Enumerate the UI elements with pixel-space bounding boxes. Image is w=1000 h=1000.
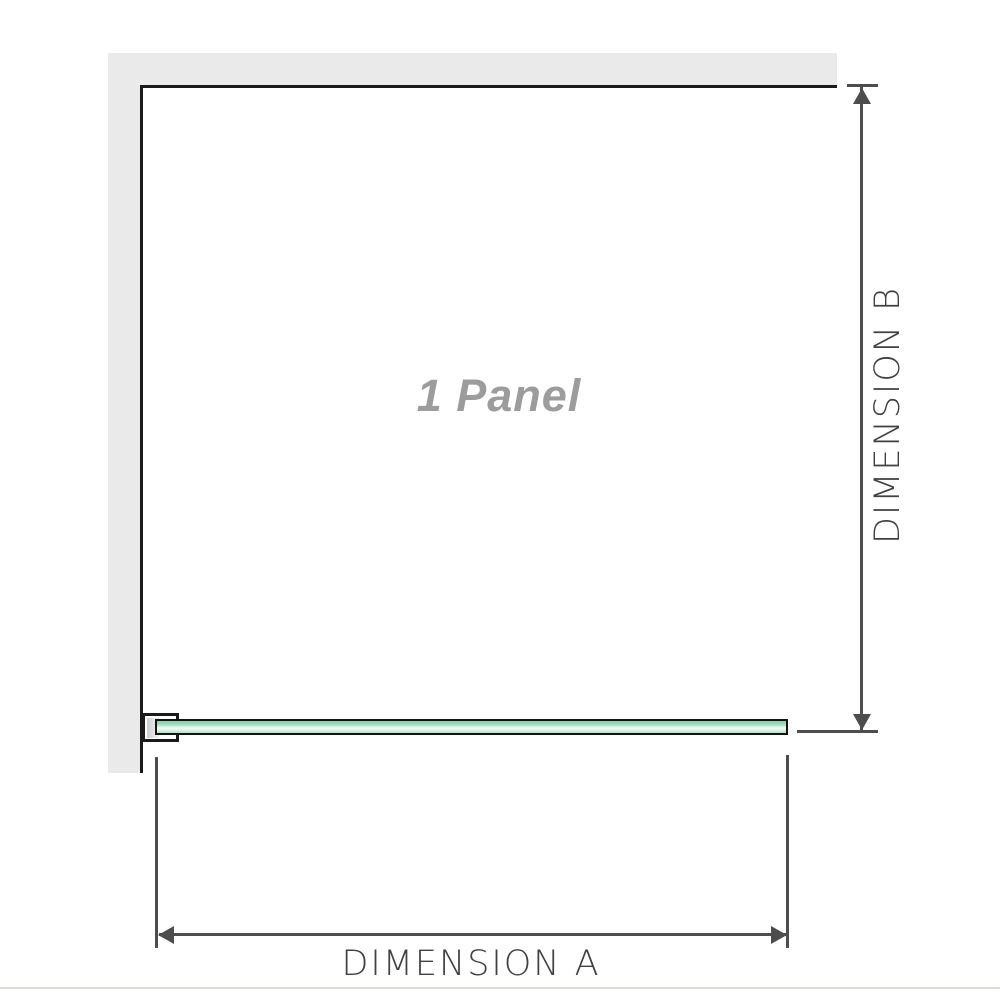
dimension-b-line — [860, 87, 863, 731]
dimension-b-label: DIMENSION B — [868, 286, 908, 544]
panel-count-watermark: 1 Panel — [417, 370, 582, 422]
arrow-right-icon — [771, 926, 787, 944]
arrow-left-icon — [158, 926, 174, 944]
dimension-b-tick-bottom — [797, 730, 878, 733]
dimension-a-extension-left — [155, 757, 158, 948]
arrow-down-icon — [853, 714, 871, 730]
panel-dimension-diagram: 1 Panel DIMENSION B DIMENSION A — [0, 0, 1000, 1000]
dimension-a-label: DIMENSION A — [341, 944, 600, 984]
dimension-a-extension-right — [786, 755, 789, 948]
dimension-b-tick-top — [847, 84, 878, 87]
enclosure-outline-top — [140, 85, 837, 88]
glass-panel — [155, 719, 788, 735]
arrow-up-icon — [853, 88, 871, 104]
wall-left — [108, 53, 140, 773]
bottom-divider — [0, 987, 1000, 989]
enclosure-outline-left — [140, 85, 143, 773]
wall-top — [108, 53, 837, 85]
dimension-a-line — [159, 933, 788, 936]
